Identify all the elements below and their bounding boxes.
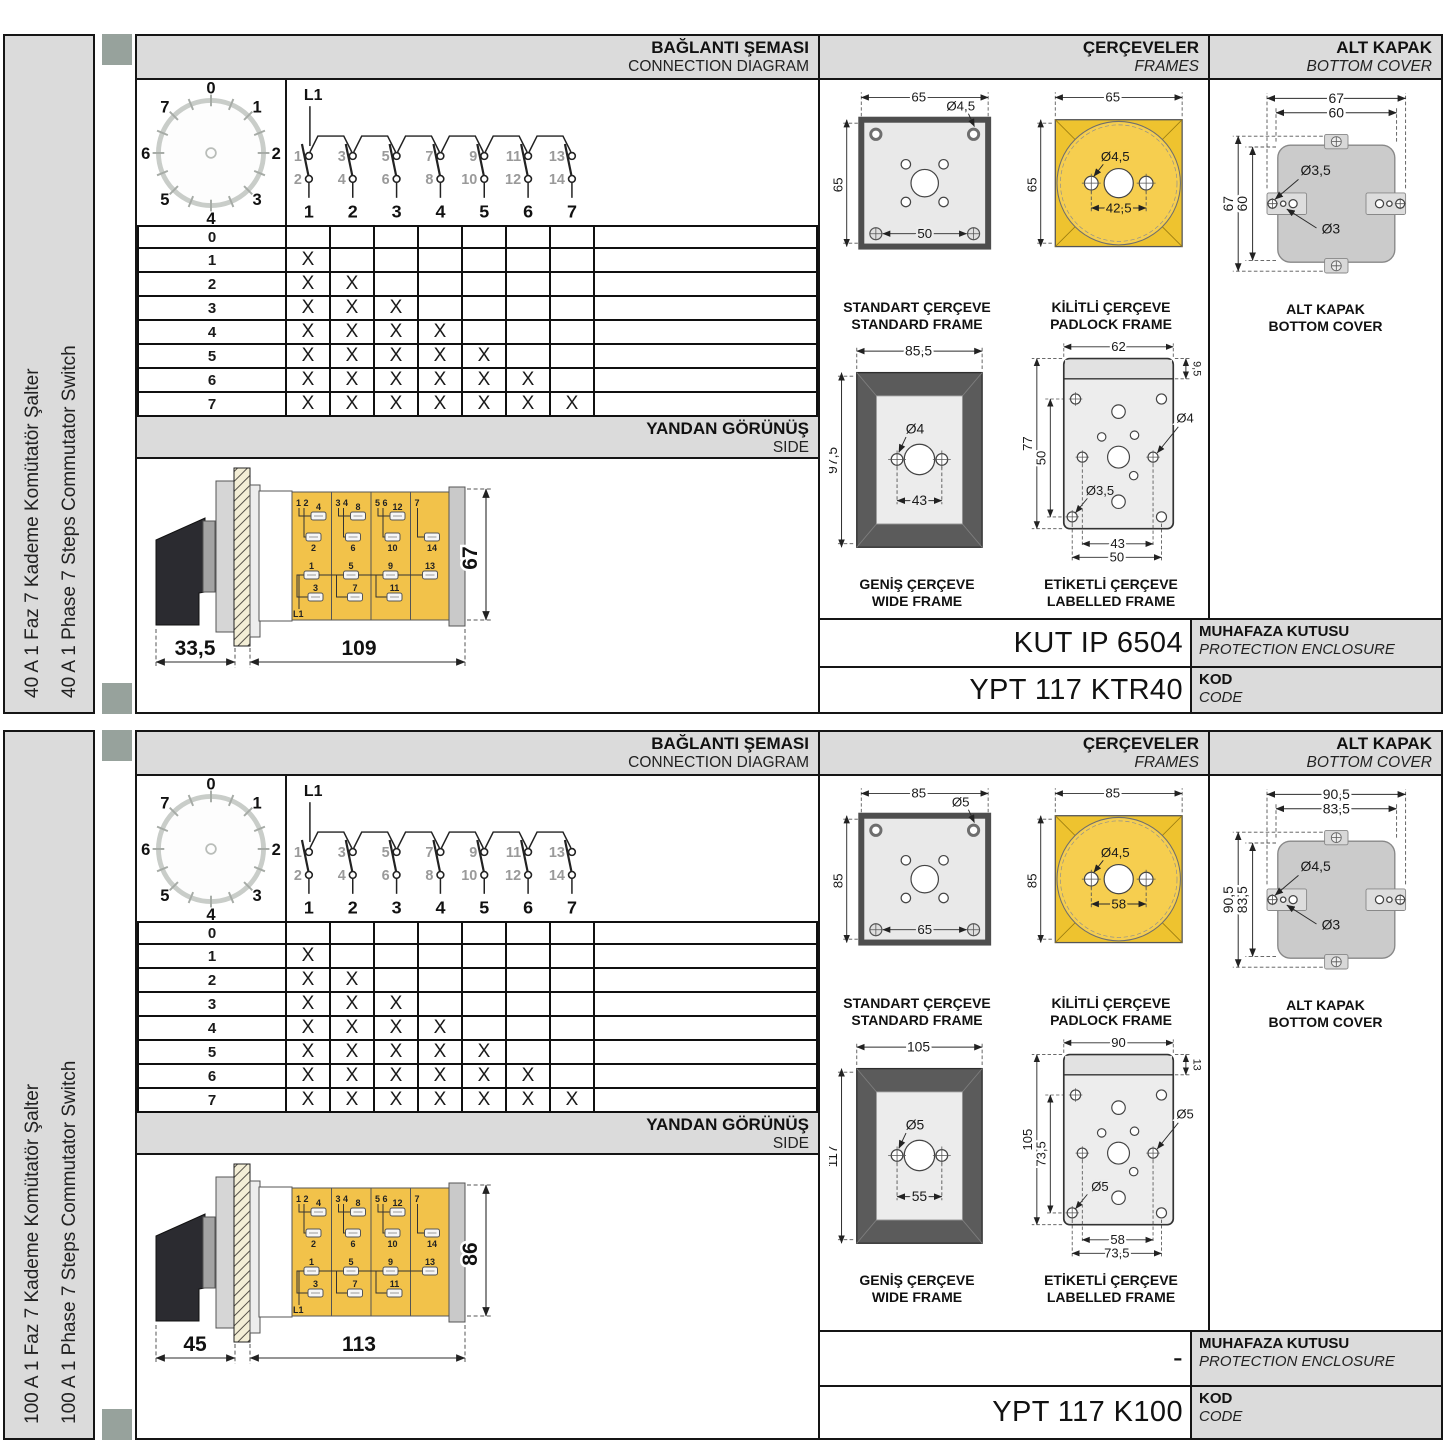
step-cell: X [550, 392, 594, 416]
step-cell [506, 992, 550, 1016]
handle-hub [203, 1217, 215, 1288]
bottom-terminal-number: 12 [505, 868, 521, 884]
step-cell [550, 226, 594, 248]
product-section: 40 A 1 Faz 7 Kademe Komütatör Şalter 40 … [0, 34, 1445, 714]
step-row: 7XXXXXXX [138, 1088, 817, 1112]
connection-header: BAĞLANTI ŞEMASI CONNECTION DIAGRAM [137, 36, 818, 80]
step-cell: X [286, 1040, 330, 1064]
wide-height: 117 [829, 1145, 840, 1167]
step-cell [506, 248, 550, 272]
step-row: 7XXXXXXX [138, 392, 817, 416]
cover-inner-w: 60 [1329, 104, 1345, 120]
bottom-terminal-number: 8 [425, 868, 433, 884]
step-cell [506, 320, 550, 344]
datasheet-content: BAĞLANTI ŞEMASI CONNECTION DIAGRAM 01234… [135, 730, 1443, 1440]
terminal-number: 3 [313, 1279, 318, 1289]
cover-header-en: BOTTOM COVER [1210, 58, 1432, 76]
contact-schematic-drawing: L112134256378491051112613147 [287, 80, 818, 225]
bottom-terminal-number: 2 [294, 868, 302, 884]
step-cell [330, 226, 374, 248]
step-filler [594, 272, 817, 296]
wide-hole: Ø4 [906, 421, 925, 437]
pad-width: 65 [1105, 90, 1120, 105]
wide-caption-en: WIDE FRAME [859, 593, 974, 610]
step-cell: X [330, 992, 374, 1016]
terminal-pair-label: 7 [415, 1194, 420, 1204]
step-cell [374, 944, 418, 968]
cover-inner-w: 83,5 [1323, 800, 1350, 816]
enclosure-value: - [820, 1332, 1190, 1385]
terminal-number: 1 [309, 561, 314, 571]
dial-number: 1 [253, 98, 262, 117]
wide-pitch: 55 [912, 1188, 928, 1204]
cover-caption-en: BOTTOM COVER [1268, 318, 1382, 335]
dim-height: 86 [459, 1242, 482, 1265]
code-label-en: CODE [1199, 1408, 1441, 1425]
frames-header-en: FRAMES [820, 58, 1199, 76]
switch-handle [156, 518, 205, 625]
product-title-en: 100 A 1 Phase 7 Steps Commutator Switch [51, 732, 88, 1424]
dial-box: 01234567 [137, 776, 287, 921]
step-cell: X [286, 1064, 330, 1088]
step-row: 1X [138, 944, 817, 968]
terminal-number: 13 [425, 561, 435, 571]
connection-header-en: CONNECTION DIAGRAM [137, 58, 809, 76]
step-cell: X [550, 1088, 594, 1112]
step-cell: X [374, 392, 418, 416]
spine-marker-top [102, 34, 132, 65]
dim-front: 33,5 [175, 637, 216, 660]
step-cell: X [418, 1064, 462, 1088]
side-header-en: SIDE [137, 439, 809, 457]
standard-frame-drawing: 65 85 85 Ø5 [833, 778, 1001, 994]
terminal-number: 9 [388, 561, 393, 571]
pole-number: 3 [392, 202, 402, 222]
dial-number: 5 [160, 886, 169, 905]
lab-hole-side: Ø5 [1176, 1107, 1193, 1122]
dim-body: 113 [342, 1333, 376, 1356]
spine-strip [101, 730, 133, 1440]
product-title-en: 40 A 1 Phase 7 Steps Commutator Switch [51, 36, 88, 698]
step-cell [506, 968, 550, 992]
step-cell [286, 922, 330, 944]
pole-number: 6 [523, 898, 533, 918]
step-cell: X [374, 992, 418, 1016]
right-top: ÇERÇEVELER FRAMES [820, 732, 1441, 1330]
step-cell [506, 226, 550, 248]
cover-column: ALT KAPAK BOTTOM COVER [1210, 732, 1441, 1330]
bottom-terminal-number: 8 [425, 172, 433, 188]
step-cell: X [286, 992, 330, 1016]
terminal-number: 8 [355, 502, 360, 512]
step-cell [462, 992, 506, 1016]
terminal-pair-label: 1 2 [296, 498, 309, 508]
padlock-frame-drawing: Ø4,5 42,5 65 65 [1027, 82, 1195, 298]
step-cell [550, 272, 594, 296]
terminal-number: 11 [390, 583, 400, 593]
step-cell: X [330, 1040, 374, 1064]
top-terminal-number: 7 [425, 149, 433, 165]
pole-number: 6 [523, 202, 533, 222]
step-cell [506, 922, 550, 944]
wide-height: 97,5 [829, 447, 840, 474]
terminal-pair-label: 5 6 [375, 498, 388, 508]
step-row: 5XXXXX [138, 344, 817, 368]
pole-number: 7 [567, 202, 577, 222]
spine-marker-top [102, 730, 132, 761]
step-position-label: 0 [138, 922, 286, 944]
front-bezel [216, 1177, 235, 1328]
terminal-pair-label: 7 [415, 498, 420, 508]
step-cell [506, 296, 550, 320]
cover-header: ALT KAPAK BOTTOM COVER [1210, 732, 1441, 776]
right-top: ÇERÇEVELER FRAMES [820, 36, 1441, 618]
bottom-cover-drawing: Ø4,5 Ø3 90,5 83,5 90,5 83,5 [1222, 780, 1429, 996]
step-row: 0 [138, 922, 817, 944]
bottom-terminal-number: 14 [549, 868, 565, 884]
step-cell [330, 944, 374, 968]
mounting-panel [234, 468, 250, 646]
enclosure-label: MUHAFAZA KUTUSU PROTECTION ENCLOSURE [1190, 620, 1441, 666]
step-position-label: 3 [138, 296, 286, 320]
wide-frame-block: Ø5 55 105 117 GENİŞ ÇERÇEVE WIDE FRAME [820, 1031, 1014, 1308]
product-titles: 40 A 1 Faz 7 Kademe Komütatör Şalter 40 … [5, 36, 95, 712]
terminal-pair-label: 1 2 [296, 1194, 309, 1204]
cover-header-tr: ALT KAPAK [1210, 734, 1432, 754]
step-filler [594, 992, 817, 1016]
labelled-caption-en: LABELLED FRAME [1044, 1289, 1178, 1306]
step-cell [462, 248, 506, 272]
dial-number: 6 [141, 144, 150, 163]
top-terminal-number: 1 [294, 845, 302, 861]
padlock-caption-tr: KİLİTLİ ÇERÇEVE [1050, 299, 1172, 316]
pole-number: 1 [304, 202, 314, 222]
terminal-number: 3 [313, 583, 318, 593]
step-cell [550, 296, 594, 320]
bus-label: L1 [293, 1305, 304, 1315]
lab-strip: 13 [1191, 1059, 1202, 1071]
labelled-caption-tr: ETİKETLİ ÇERÇEVE [1044, 1272, 1178, 1289]
lab-hole-corner: Ø5 [1091, 1179, 1108, 1194]
step-cell [374, 248, 418, 272]
dial-number: 0 [206, 777, 215, 794]
lab-width: 90 [1111, 1035, 1126, 1050]
enclosure-label: MUHAFAZA KUTUSU PROTECTION ENCLOSURE [1190, 1332, 1441, 1385]
step-cell: X [506, 392, 550, 416]
bus-label: L1 [293, 609, 304, 619]
step-cell: X [374, 1040, 418, 1064]
step-filler [594, 226, 817, 248]
top-terminal-number: 3 [338, 845, 346, 861]
code-label-tr: KOD [1199, 1390, 1441, 1408]
bottom-terminal-number: 4 [338, 868, 346, 884]
bottom-terminal-number: 10 [461, 172, 477, 188]
dial-number: 3 [253, 886, 262, 905]
cover-hole-big: Ø4,5 [1300, 858, 1330, 874]
bottom-cover-drawing: Ø3,5 Ø3 67 60 67 60 [1222, 84, 1429, 300]
top-terminal-number: 5 [382, 149, 390, 165]
terminal-number: 5 [348, 1257, 353, 1267]
step-row: 5XXXXX [138, 1040, 817, 1064]
std-height: 85 [833, 873, 845, 888]
step-cell: X [418, 1088, 462, 1112]
terminal-number: 14 [427, 1239, 437, 1249]
cover-caption-tr: ALT KAPAK [1268, 301, 1382, 318]
step-cell [550, 944, 594, 968]
top-terminal-number: 13 [549, 845, 565, 861]
lab-height: 77 [1020, 436, 1035, 451]
switch-handle [156, 1214, 205, 1321]
step-cell: X [462, 1064, 506, 1088]
front-bezel [216, 481, 235, 632]
standard-frame-drawing: 50 65 65 Ø4,5 [833, 82, 1001, 298]
right-area: ÇERÇEVELER FRAMES [820, 36, 1441, 712]
contact-schematic-drawing: L112134256378491051112613147 [287, 776, 818, 921]
spine-marker-bottom [102, 1409, 132, 1440]
step-cell [550, 368, 594, 392]
side-header-tr: YANDAN GÖRÜNÜŞ [137, 419, 809, 439]
step-cell [550, 1016, 594, 1040]
step-cell [462, 922, 506, 944]
cover-header-tr: ALT KAPAK [1210, 38, 1432, 58]
datasheet-content: BAĞLANTI ŞEMASI CONNECTION DIAGRAM 01234… [135, 34, 1443, 714]
step-cell [462, 944, 506, 968]
step-cell: X [462, 392, 506, 416]
terminal-number: 14 [427, 543, 437, 553]
labelled-caption-en: LABELLED FRAME [1044, 593, 1178, 610]
padlock-caption-en: PADLOCK FRAME [1050, 316, 1172, 333]
step-cell: X [374, 1016, 418, 1040]
std-hole: Ø4,5 [946, 98, 975, 113]
step-filler [594, 344, 817, 368]
wide-hole: Ø5 [906, 1117, 925, 1133]
side-view: 1 242133 486575 6121091171413L1 33,5 109… [137, 459, 818, 712]
codes-block: KUT IP 6504 MUHAFAZA KUTUSU PROTECTION E… [820, 618, 1441, 712]
cover-inner-h: 60 [1234, 196, 1250, 212]
std-width: 85 [911, 786, 926, 801]
top-terminal-number: 5 [382, 845, 390, 861]
step-cell [418, 922, 462, 944]
top-terminal-number: 1 [294, 149, 302, 165]
pole-number: 2 [348, 898, 358, 918]
enclosure-row: KUT IP 6504 MUHAFAZA KUTUSU PROTECTION E… [820, 620, 1441, 666]
step-cell [462, 272, 506, 296]
step-position-label: 4 [138, 1016, 286, 1040]
step-cell: X [330, 1088, 374, 1112]
top-terminal-number: 9 [469, 845, 477, 861]
step-cell: X [418, 368, 462, 392]
codes-block: - MUHAFAZA KUTUSU PROTECTION ENCLOSURE Y… [820, 1330, 1441, 1438]
lab-hole-corner: Ø3,5 [1086, 483, 1114, 498]
step-position-label: 2 [138, 272, 286, 296]
step-cell [418, 226, 462, 248]
step-cell: X [286, 296, 330, 320]
step-cell: X [286, 944, 330, 968]
step-filler [594, 1064, 817, 1088]
top-terminal-number: 11 [506, 149, 521, 165]
padlock-caption-en: PADLOCK FRAME [1050, 1012, 1172, 1029]
step-cell: X [418, 392, 462, 416]
code-value: YPT 117 KTR40 [820, 668, 1190, 712]
code-label: KOD CODE [1190, 1387, 1441, 1438]
cover-column: ALT KAPAK BOTTOM COVER [1210, 36, 1441, 618]
step-cell [506, 272, 550, 296]
rotary-dial: 01234567 [141, 777, 281, 920]
product-title-tr: 100 A 1 Faz 7 Kademe Komütatör Şalter [14, 732, 51, 1424]
bottom-terminal-number: 6 [382, 172, 390, 188]
catalog-page: 40 A 1 Faz 7 Kademe Komütatör Şalter 40 … [0, 0, 1445, 1445]
side-header-tr: YANDAN GÖRÜNÜŞ [137, 1115, 809, 1135]
frames-grid: 65 85 85 Ø5 STANDART ÇERÇEVE STANDARD FR… [820, 776, 1208, 1330]
terminal-number: 2 [311, 543, 316, 553]
step-filler [594, 248, 817, 272]
terminal-number: 5 [348, 561, 353, 571]
padlock-frame-drawing: Ø4,5 58 85 85 [1027, 778, 1195, 994]
step-cell: X [374, 320, 418, 344]
code-row: YPT 117 K100 KOD CODE [820, 1385, 1441, 1438]
terminal-number: 12 [392, 1198, 402, 1208]
dial-number: 2 [272, 840, 281, 859]
pole-number: 5 [479, 202, 489, 222]
wide-frame-drawing: Ø4 43 85,5 97,5 [829, 335, 1005, 575]
product-sidebar: 40 A 1 Faz 7 Kademe Komütatör Şalter 40 … [3, 34, 95, 714]
bottom-cover-block: Ø4,5 Ø3 90,5 83,5 90,5 83,5 ALT KAPAK BO… [1210, 776, 1441, 1033]
dial-number: 7 [160, 794, 169, 813]
product-section: 100 A 1 Faz 7 Kademe Komütatör Şalter 10… [0, 730, 1445, 1440]
step-row: 6XXXXXX [138, 368, 817, 392]
bottom-terminal-number: 2 [294, 172, 302, 188]
terminal-number: 1 [309, 1257, 314, 1267]
step-cell: X [330, 1016, 374, 1040]
lab-inner-height: 73,5 [1033, 1141, 1048, 1166]
standard-frame-block: 65 85 85 Ø5 STANDART ÇERÇEVE STANDARD FR… [820, 778, 1014, 1031]
bottom-cover-block: Ø3,5 Ø3 67 60 67 60 ALT KAPAK BOTTOM COV… [1210, 80, 1441, 337]
frames-header-en: FRAMES [820, 754, 1199, 772]
step-cell: X [286, 272, 330, 296]
wide-frame-block: Ø4 43 85,5 97,5 GENİŞ ÇERÇEVE WIDE FRAM [820, 335, 1014, 612]
step-cell: X [462, 1088, 506, 1112]
lab-width: 62 [1111, 339, 1126, 354]
lab-pitch-outer: 50 [1110, 550, 1125, 565]
std-hole: Ø5 [952, 794, 970, 809]
handle-hub [203, 521, 215, 592]
product-sidebar: 100 A 1 Faz 7 Kademe Komütatör Şalter 10… [3, 730, 95, 1440]
dial-number: 3 [253, 190, 262, 209]
pole-number: 5 [479, 898, 489, 918]
enclosure-value: KUT IP 6504 [820, 620, 1190, 666]
step-cell: X [506, 1064, 550, 1088]
connection-column: BAĞLANTI ŞEMASI CONNECTION DIAGRAM 01234… [137, 732, 820, 1438]
step-cell [330, 922, 374, 944]
step-cell: X [330, 272, 374, 296]
step-row: 3XXX [138, 296, 817, 320]
contacts-box: L112134256378491051112613147 [287, 80, 818, 225]
connection-diagram: 01234567 L112134256378491051112613147 [137, 776, 818, 921]
step-filler [594, 1088, 817, 1112]
step-row: 4XXXX [138, 320, 817, 344]
rotary-dial-drawing: 01234567 [138, 81, 284, 224]
std-pitch: 65 [917, 922, 932, 937]
terminal-pair-label: 3 4 [336, 1194, 349, 1204]
rotary-dial-drawing: 01234567 [138, 777, 284, 920]
wide-width: 105 [907, 1039, 930, 1055]
step-row: 3XXX [138, 992, 817, 1016]
step-cell: X [286, 344, 330, 368]
step-cell: X [418, 320, 462, 344]
shaft-section [259, 491, 292, 621]
padlock-frame-block: Ø4,5 42,5 65 65 KİLİTLİ ÇERÇEVE PADLOCK [1014, 82, 1208, 335]
pole-number: 7 [567, 898, 577, 918]
step-cell: X [374, 296, 418, 320]
terminal-pair-label: 3 4 [336, 498, 349, 508]
dim-front: 45 [183, 1333, 207, 1356]
step-cell: X [330, 1064, 374, 1088]
frames-column: ÇERÇEVELER FRAMES [820, 732, 1210, 1330]
step-cell: X [286, 968, 330, 992]
step-cell: X [330, 368, 374, 392]
step-cell [506, 1016, 550, 1040]
wide-frame-drawing: Ø5 55 105 117 [829, 1031, 1005, 1271]
side-view-header: YANDAN GÖRÜNÜŞ SIDE [137, 1113, 818, 1155]
standard-caption-tr: STANDART ÇERÇEVE [843, 299, 991, 316]
step-position-label: 1 [138, 248, 286, 272]
step-cell [418, 968, 462, 992]
dial-box: 01234567 [137, 80, 287, 225]
terminal-number: 11 [390, 1279, 400, 1289]
bottom-terminal-number: 4 [338, 172, 346, 188]
step-filler [594, 320, 817, 344]
pole-number: 1 [304, 898, 314, 918]
std-height: 65 [833, 177, 845, 192]
shaft-section [259, 1187, 292, 1317]
step-cell [550, 320, 594, 344]
std-width: 65 [911, 90, 926, 105]
product-titles: 100 A 1 Faz 7 Kademe Komütatör Şalter 10… [5, 732, 95, 1438]
step-row: 2XX [138, 272, 817, 296]
frames-header-tr: ÇERÇEVELER [820, 38, 1199, 58]
step-cell [462, 320, 506, 344]
top-terminal-number: 3 [338, 149, 346, 165]
step-cell: X [330, 344, 374, 368]
step-filler [594, 296, 817, 320]
step-cell: X [462, 344, 506, 368]
code-label-en: CODE [1199, 689, 1441, 706]
step-cell [550, 1040, 594, 1064]
dial-number: 5 [160, 190, 169, 209]
top-terminal-number: 9 [469, 149, 477, 165]
cover-header-en: BOTTOM COVER [1210, 754, 1432, 772]
step-cell: X [374, 1088, 418, 1112]
step-position-label: 3 [138, 992, 286, 1016]
spine-marker-bottom [102, 683, 132, 714]
enclosure-label-tr: MUHAFAZA KUTUSU [1199, 1335, 1441, 1353]
connection-header-tr: BAĞLANTI ŞEMASI [137, 38, 809, 58]
step-cell: X [330, 296, 374, 320]
dial-number: 4 [206, 209, 216, 224]
step-position-label: 5 [138, 344, 286, 368]
connection-column: BAĞLANTI ŞEMASI CONNECTION DIAGRAM 01234… [137, 36, 820, 712]
dim-body: 109 [341, 637, 376, 660]
step-filler [594, 368, 817, 392]
step-cell: X [330, 392, 374, 416]
step-cell [506, 944, 550, 968]
contact-diagram: L112134256378491051112613147 [294, 783, 577, 918]
enclosure-label-en: PROTECTION ENCLOSURE [1199, 1353, 1441, 1370]
terminal-pair-label: 5 6 [375, 1194, 388, 1204]
step-row: 4XXXX [138, 1016, 817, 1040]
side-header-en: SIDE [137, 1135, 809, 1153]
frames-header-tr: ÇERÇEVELER [820, 734, 1199, 754]
